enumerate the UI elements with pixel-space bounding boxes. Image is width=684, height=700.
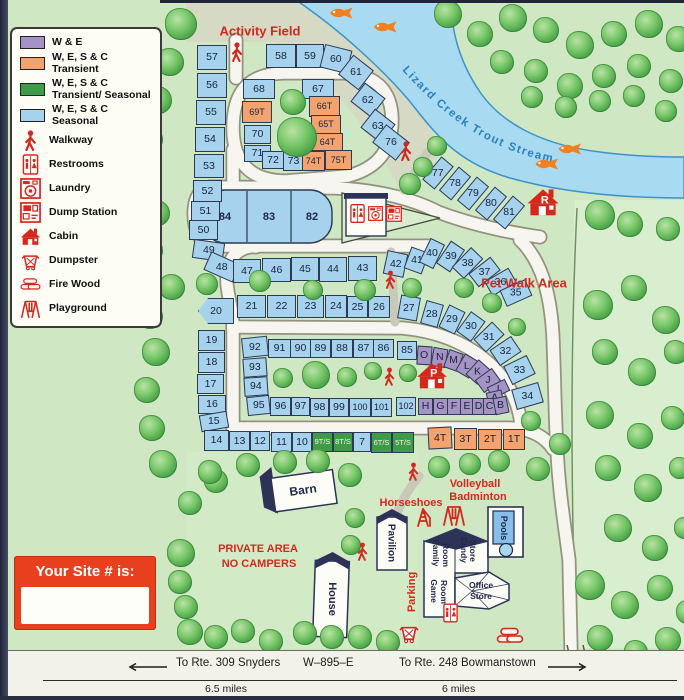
laundry-icon [20, 178, 41, 199]
left-miles: 6.5 miles [205, 683, 247, 695]
legend-item: Laundry [20, 178, 155, 199]
highway-line [43, 680, 677, 681]
west-arrow-icon [126, 662, 168, 672]
legend-label: W & E [52, 37, 82, 49]
legend-item: W, E, S & C Transient [20, 52, 155, 75]
office-store-building [455, 572, 509, 609]
legend-swatch [20, 109, 45, 122]
legend-label: Dump Station [49, 207, 117, 219]
route-309-label: To Rte. 309 Snyders [176, 657, 280, 669]
legend-label: W, E, S & C Seasonal [52, 104, 155, 127]
route-895-label: W–895–E [303, 657, 354, 669]
legend-swatch [20, 57, 45, 70]
legend-item: Cabin [20, 226, 155, 247]
legend-item: Dump Station [20, 202, 155, 223]
highway-strip: To Rte. 309 Snyders W–895–E To Rte. 248 … [0, 650, 684, 697]
legend-item: Walkway [20, 130, 155, 151]
house-building [313, 551, 350, 637]
pavilion-building [377, 509, 407, 570]
route-248-label: To Rte. 248 Bowmanstown [399, 657, 536, 669]
right-miles: 6 miles [442, 683, 475, 695]
legend-item: Playground [20, 298, 155, 319]
legend-label: Fire Wood [49, 279, 100, 291]
legend-label: W, E, S & C Transient/ Seasonal [52, 78, 155, 101]
legend-label: Playground [49, 303, 107, 315]
legend-item: W & E [20, 36, 155, 49]
restroom-icon [20, 154, 41, 175]
your-site-title: Your Site # is: [14, 563, 156, 580]
cabin-icon [20, 226, 41, 247]
walker-icon [20, 130, 41, 151]
legend-item: W, E, S & C Transient/ Seasonal [20, 78, 155, 101]
firewood-icon [20, 274, 41, 295]
legend-label: Walkway [49, 135, 93, 147]
legend-label: Laundry [49, 183, 90, 195]
east-arrow-icon [547, 662, 589, 672]
legend-item: W, E, S & C Seasonal [20, 104, 155, 127]
legend-label: Dumpster [49, 255, 98, 267]
legend-item: Restrooms [20, 154, 155, 175]
your-site-box: Your Site # is: [14, 556, 156, 630]
playground-icon [20, 298, 41, 319]
campground-map: Lizard Creek Trout Stream [0, 0, 684, 700]
legend-label: Restrooms [49, 159, 104, 171]
scan-edge-top [160, 0, 684, 3]
legend: W & EW, E, S & C TransientW, E, S & C Tr… [10, 27, 162, 328]
pool-circle [500, 544, 513, 557]
scan-edge-left [0, 0, 8, 700]
legend-swatch [20, 83, 45, 96]
pet-walk-area-patch [570, 200, 684, 648]
legend-item: Fire Wood [20, 274, 155, 295]
legend-label: Cabin [49, 231, 78, 243]
your-site-blank-field [21, 587, 149, 624]
scan-edge-bottom [0, 696, 684, 700]
pools-area [488, 507, 523, 557]
dump-icon [20, 202, 41, 223]
dumpster-icon [20, 250, 41, 271]
island-sites-82-84 [203, 190, 332, 243]
legend-label: W, E, S & C Transient [52, 52, 155, 75]
legend-item: Dumpster [20, 250, 155, 271]
restroom-building [346, 198, 386, 236]
legend-swatch [20, 36, 45, 49]
